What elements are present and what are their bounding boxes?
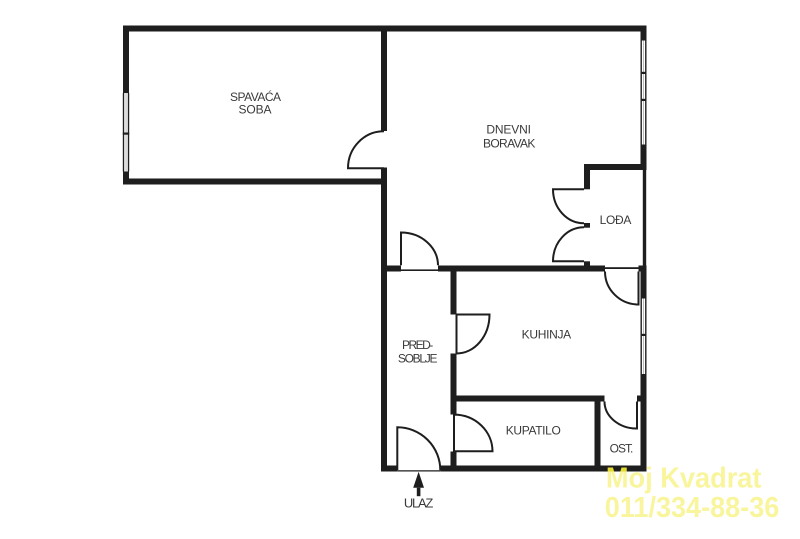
svg-text:KUPATILO: KUPATILO [506,424,561,438]
svg-text:PRED-: PRED- [402,338,433,352]
svg-text:SOBA: SOBA [239,103,272,117]
svg-text:OST.: OST. [610,442,634,456]
svg-text:DNEVNI: DNEVNI [486,122,531,136]
svg-text:011/334-88-36: 011/334-88-36 [605,492,780,524]
svg-text:Moj Kvadrat: Moj Kvadrat [606,462,762,494]
svg-text:LOĐA: LOĐA [600,213,632,227]
svg-text:SOBLJE: SOBLJE [398,352,438,366]
svg-text:KUHINJA: KUHINJA [522,328,572,342]
svg-text:BORAVAK: BORAVAK [483,136,536,150]
svg-text:ULAZ: ULAZ [404,495,434,510]
